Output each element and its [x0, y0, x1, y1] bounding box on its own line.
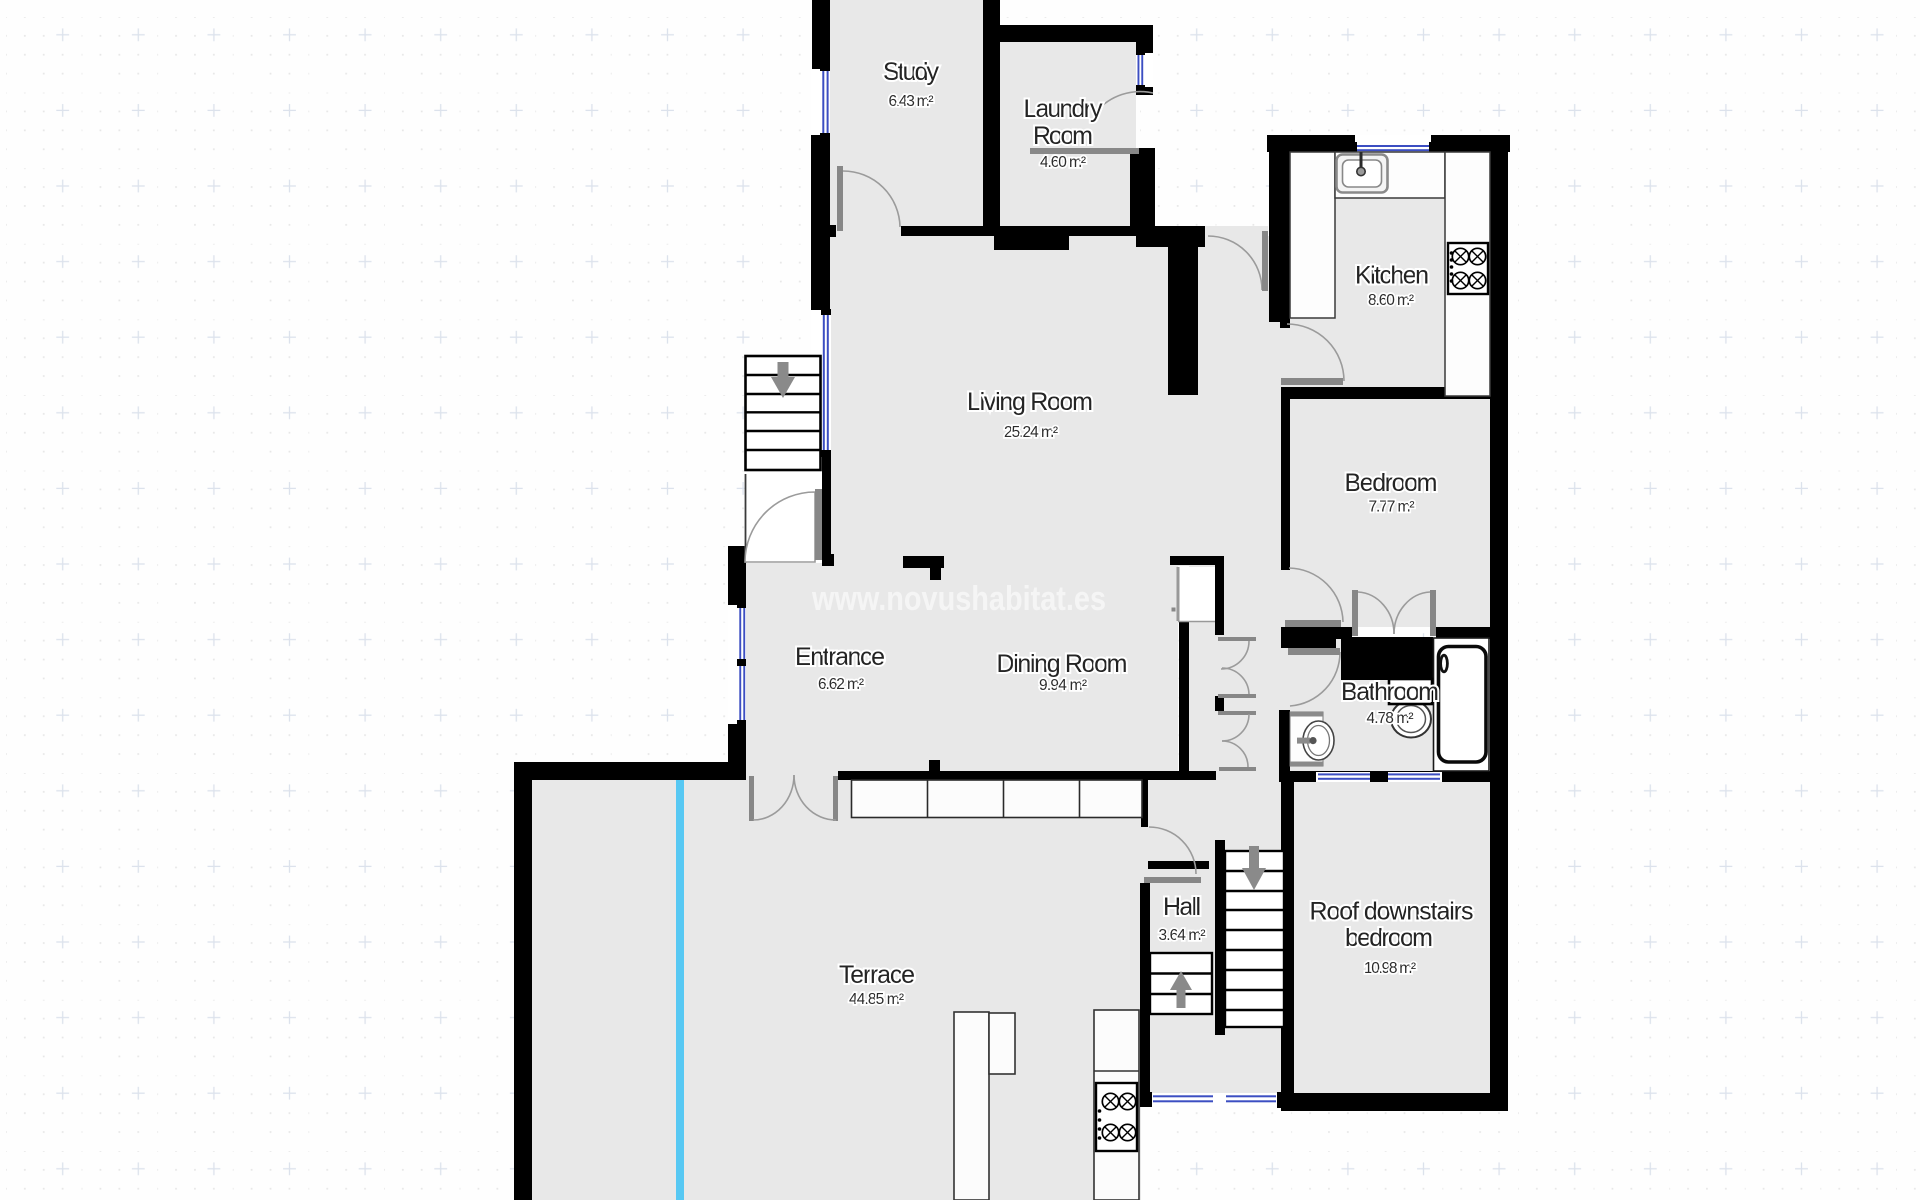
svg-text:Kitchen: Kitchen [1355, 262, 1429, 290]
svg-text:bedroom: bedroom [1345, 924, 1433, 952]
svg-text:3.64 m²: 3.64 m² [1159, 927, 1206, 944]
svg-text:Terrace: Terrace [839, 961, 915, 989]
svg-text:Hall: Hall [1163, 893, 1201, 921]
svg-text:Dining Room: Dining Room [997, 650, 1128, 678]
svg-text:4.78 m²: 4.78 m² [1367, 710, 1414, 727]
svg-text:Bedroom: Bedroom [1345, 469, 1438, 497]
svg-text:Room: Room [1033, 122, 1093, 150]
svg-text:Entrance: Entrance [795, 643, 885, 671]
svg-text:7.77 m²: 7.77 m² [1369, 499, 1415, 516]
svg-text:25.24 m²: 25.24 m² [1004, 424, 1058, 441]
svg-text:44.85 m²: 44.85 m² [849, 991, 904, 1008]
svg-text:6.62 m²: 6.62 m² [818, 676, 864, 693]
svg-text:4.60 m²: 4.60 m² [1040, 154, 1086, 171]
svg-text:Laundry: Laundry [1024, 95, 1104, 123]
svg-text:10.98 m²: 10.98 m² [1364, 960, 1416, 977]
svg-text:6.43 m²: 6.43 m² [889, 93, 934, 110]
svg-text:Study: Study [883, 58, 940, 86]
svg-text:www.novushabitat.es: www.novushabitat.es [811, 580, 1106, 618]
svg-text:Living Room: Living Room [967, 388, 1093, 416]
svg-text:9.94 m²: 9.94 m² [1039, 677, 1087, 694]
svg-text:Bathroom: Bathroom [1341, 678, 1439, 706]
svg-text:8.60 m²: 8.60 m² [1368, 292, 1414, 309]
svg-text:Roof downstairs: Roof downstairs [1310, 898, 1474, 926]
